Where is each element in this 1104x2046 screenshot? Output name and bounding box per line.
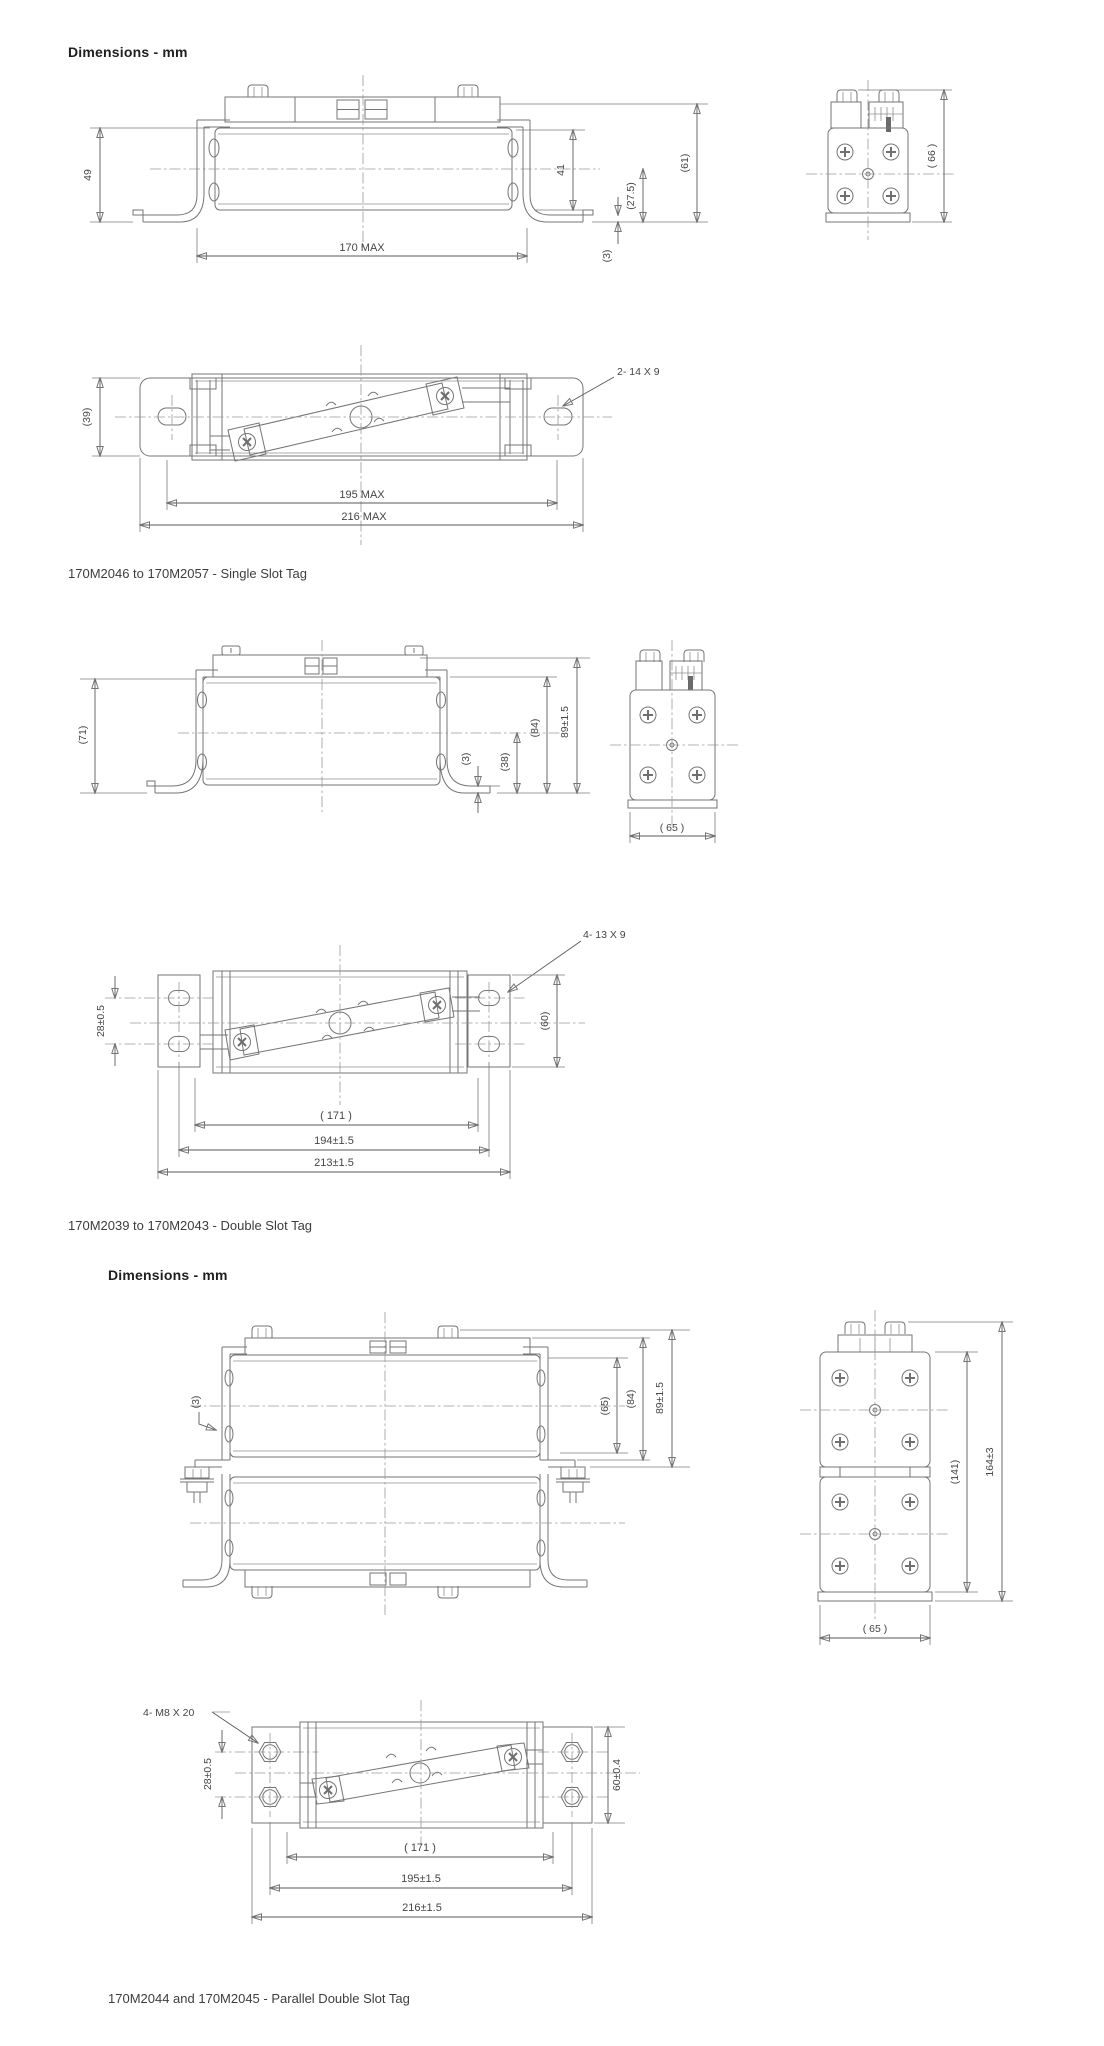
dim-141: (141): [949, 1460, 961, 1485]
dim-65: ( 65 ): [863, 1623, 888, 1635]
mounting-bracket-right: [523, 1347, 590, 1587]
fuse-blade-link: [300, 1743, 543, 1804]
dim-49: 49: [82, 169, 94, 181]
section-title: Dimensions - mm: [108, 1267, 228, 1283]
dim-171: ( 171 ): [320, 1110, 352, 1122]
parallel-end-view: (141) 164±3 ( 65 ): [800, 1310, 1013, 1645]
terminal-pin: [886, 117, 891, 132]
terminal-screw: [403, 646, 425, 655]
dim-164: 164±3: [984, 1447, 996, 1476]
single-end-view: ( 66 ): [806, 80, 955, 240]
dim-28: 28±0.5: [202, 1758, 214, 1790]
slot-size-note: 4- 13 X 9: [583, 929, 626, 941]
dim-84: (84): [625, 1390, 637, 1409]
parallel-side-view: (3) (65) (84) 89±1.5: [180, 1312, 690, 1615]
dim-28: 28±0.5: [95, 1005, 107, 1037]
dim-89: 89±1.5: [654, 1382, 666, 1414]
fuse-body: [203, 677, 440, 785]
dim-194: 194±1.5: [314, 1135, 354, 1147]
dim-195-max: 195 MAX: [339, 489, 385, 501]
datasheet-page: Dimensions - mm: [0, 0, 1104, 2046]
double-plan-view: 4- 13 X 9 28±0.5 (60) ( 171 ) 194±1.5 21…: [95, 929, 626, 1179]
terminal-screw: [220, 646, 242, 655]
slot-tag-plate-right: [543, 1727, 592, 1823]
single-side-view: 49 41 (27.5) (61) (3) 170 MAX: [82, 75, 708, 263]
dim-38: (38): [499, 753, 511, 772]
dim-213: 213±1.5: [314, 1157, 354, 1169]
dim-3: (3): [190, 1396, 202, 1409]
mounting-bracket-left: [180, 1347, 247, 1587]
fuse-blade-link: [210, 377, 510, 461]
double-end-view: ( 65 ): [610, 640, 740, 843]
dim-39: (39): [81, 408, 93, 427]
dim-66: ( 66 ): [926, 144, 938, 169]
caption-single-slot-tag: 170M2046 to 170M2057 - Single Slot Tag: [68, 566, 307, 581]
dim-84: (84): [529, 719, 541, 738]
dim-41: 41: [555, 164, 567, 176]
slot-tag-plate-left: [252, 1727, 300, 1823]
dim-216-max: 216 MAX: [341, 511, 387, 523]
dim-65: (65): [599, 1397, 611, 1416]
single-plan-view: 2- 14 X 9 (39) 195 MAX 216 MAX: [81, 345, 660, 545]
double-side-view: (71) (3) (38) (84) 89±1.5: [77, 640, 590, 813]
mounting-bracket-left: [147, 670, 218, 793]
caption-double-slot-tag: 170M2039 to 170M2043 - Double Slot Tag: [68, 1218, 312, 1233]
dim-60: 60±0.4: [611, 1759, 623, 1791]
bolt-size-note: 4- M8 X 20: [143, 1707, 195, 1719]
dim-89: 89±1.5: [559, 706, 571, 738]
dim-27-5: (27.5): [625, 182, 637, 209]
slot-tag-plate: [140, 378, 583, 456]
fuse-body: [300, 1722, 543, 1828]
terminal-bolt: [837, 90, 857, 102]
technical-drawing-canvas: 49 41 (27.5) (61) (3) 170 MAX: [0, 0, 1104, 2046]
dim-171: ( 171 ): [404, 1842, 436, 1854]
dim-195: 195±1.5: [401, 1873, 441, 1885]
dim-61: (61): [679, 154, 691, 173]
mounting-bracket-right: [425, 670, 490, 793]
dim-3: (3): [460, 753, 472, 766]
parallel-plan-view: 4- M8 X 20 28±0.5 60±0.4 ( 171 ) 195±1.5: [143, 1700, 640, 1924]
dim-71: (71): [77, 726, 89, 745]
caption-parallel-double-slot-tag: 170M2044 and 170M2045 - Parallel Double …: [108, 1991, 410, 2006]
dim-170-max: 170 MAX: [339, 242, 385, 254]
dim-65: ( 65 ): [660, 822, 685, 834]
dim-60: (60): [539, 1012, 551, 1031]
dim-3: (3): [601, 250, 613, 263]
dim-216: 216±1.5: [402, 1902, 442, 1914]
slot-size-note: 2- 14 X 9: [617, 366, 660, 378]
